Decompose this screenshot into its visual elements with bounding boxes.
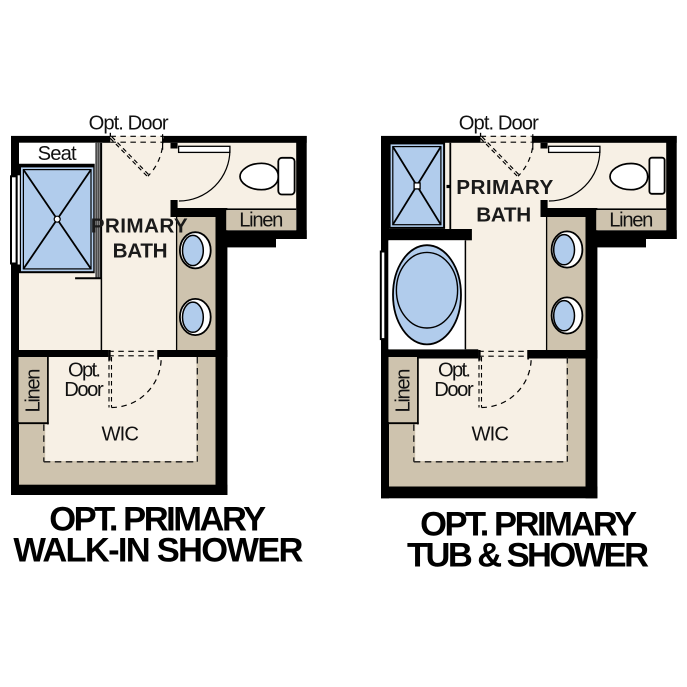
svg-text:PRIMARY: PRIMARY bbox=[456, 176, 553, 199]
svg-text:Linen: Linen bbox=[23, 369, 45, 413]
svg-text:WIC: WIC bbox=[472, 423, 510, 445]
svg-text:Linen: Linen bbox=[609, 209, 653, 231]
svg-text:TUB & SHOWER: TUB & SHOWER bbox=[407, 536, 649, 574]
svg-text:Linen: Linen bbox=[239, 209, 283, 231]
svg-text:Opt. Door: Opt. Door bbox=[459, 113, 539, 135]
svg-text:Linen: Linen bbox=[393, 369, 415, 413]
svg-text:BATH: BATH bbox=[113, 239, 168, 262]
svg-text:Seat: Seat bbox=[38, 143, 77, 165]
svg-text:BATH: BATH bbox=[476, 203, 531, 226]
svg-text:Door: Door bbox=[64, 379, 104, 401]
svg-text:Opt. Door: Opt. Door bbox=[89, 113, 169, 135]
svg-text:WIC: WIC bbox=[102, 423, 140, 445]
svg-text:Door: Door bbox=[434, 379, 474, 401]
svg-text:PRIMARY: PRIMARY bbox=[91, 215, 188, 238]
svg-text:WALK-IN SHOWER: WALK-IN SHOWER bbox=[13, 532, 303, 570]
